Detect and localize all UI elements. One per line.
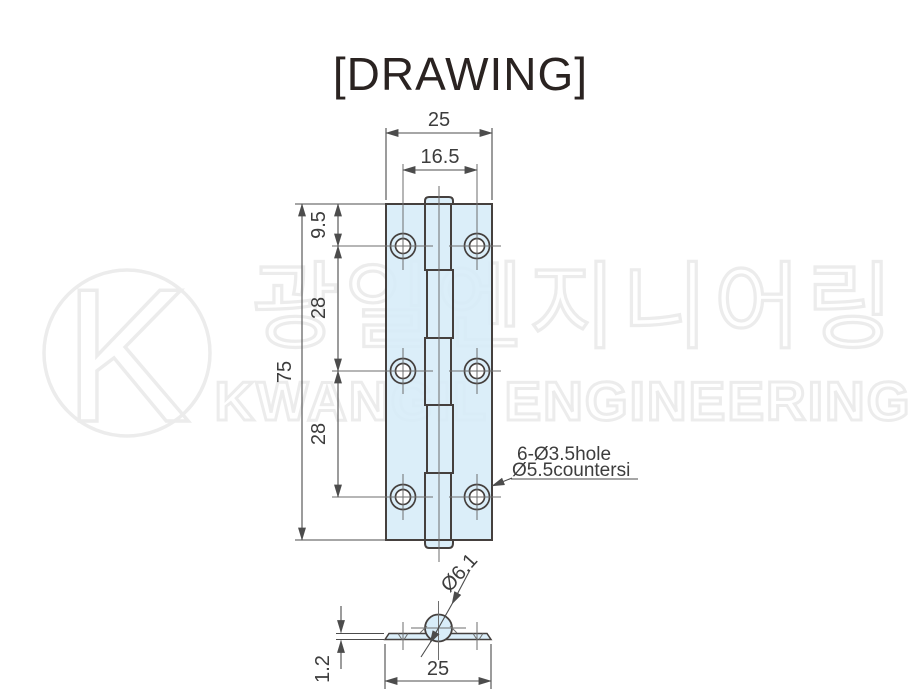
dim-text-offset-9-5: 9.5 [308, 211, 330, 239]
hole-note-line2: Ø5.5countersi [512, 460, 630, 481]
section-view: Ø6.1 25 1.2 [312, 550, 491, 689]
hinge-technical-drawing: K 광일엔지니어링 KWANGIL ENGINEERING [0, 0, 921, 700]
section-dimension-texts: Ø6.1 25 1.2 [312, 550, 482, 683]
dim-text-span-16-5: 16.5 [421, 146, 460, 168]
dim-text-width-25: 25 [428, 109, 450, 131]
dim-text-knuckle-diameter: Ø6.1 [437, 550, 482, 597]
dim-text-section-width-25: 25 [427, 658, 449, 680]
watermark-english-text: KWANGIL ENGINEERING [214, 370, 911, 432]
dim-text-height-75: 75 [274, 361, 296, 383]
drawing-page: [DRAWING] K 광일엔지니어링 KWANGIL ENGINEERING [0, 0, 921, 700]
dim-text-plate-thickness: 1.2 [312, 655, 334, 683]
dim-text-pitch-28-upper: 28 [308, 297, 330, 319]
hole-note-leader [492, 478, 512, 486]
watermark-korean-text: 광일엔지니어링 [252, 255, 899, 361]
section-dimensions [336, 570, 491, 689]
watermark-logo-letter-k: K [64, 250, 191, 462]
dim-text-pitch-28-lower: 28 [308, 423, 330, 445]
